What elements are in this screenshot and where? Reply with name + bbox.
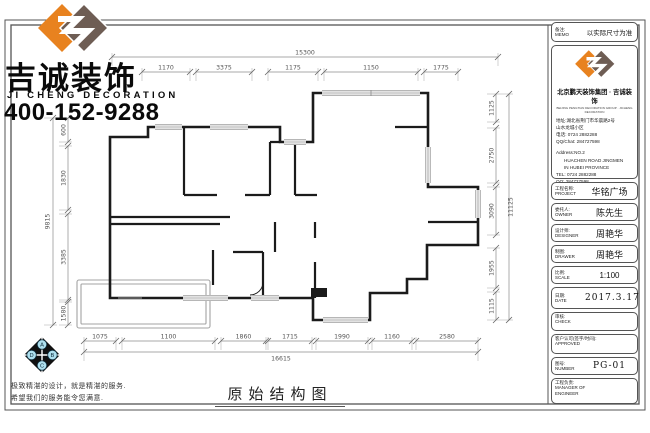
dimension-label: 1715 [282, 334, 298, 341]
tel-en: TEL: 0724 2882288 [556, 171, 633, 178]
field-scale: 比例:SCALE 1:100 [551, 266, 638, 284]
dimension-label: 1830 [61, 170, 68, 186]
memo-box: 备注: MEMO 以实际尺寸为准 [551, 22, 638, 42]
address-en-1: Address:NO.2 [556, 149, 633, 156]
owner-value: 陈先生 [585, 206, 634, 219]
dimension-label: 11125 [508, 197, 515, 217]
interior-walls [110, 127, 478, 298]
dimension-label: 1125 [489, 100, 496, 116]
field-approved: 客户认可(签字/时间):APPROVED [551, 334, 638, 354]
svg-text:C: C [40, 364, 44, 370]
field-number: 图号:NUMBER PG-01 [551, 357, 638, 375]
title-block: 备注: MEMO 以实际尺寸为准 北京鹏天装饰集团 · 吉诚装饰 BEIJING… [551, 22, 638, 404]
balcony-outline [77, 280, 210, 328]
company-phone: 400-152-9288 [4, 99, 159, 127]
field-project: 工程名称:PROJECT 华铭广场 [551, 182, 638, 200]
dimension-label: 1160 [384, 334, 400, 341]
svg-text:D: D [29, 353, 33, 359]
dimension-label: 9815 [45, 214, 52, 230]
slogan-line-1: 极致精湛的设计，就是精湛的服务. [11, 381, 126, 391]
dimension-label: 2750 [489, 148, 496, 164]
dimension-label: 3385 [61, 249, 68, 265]
titleblock-company-line: 北京鹏天装饰集团 · 吉诚装饰 [556, 87, 633, 105]
dimension-label: 1075 [92, 334, 108, 341]
titleblock-logo-icon [574, 49, 616, 81]
dimension-label: 1175 [285, 65, 301, 72]
drawer-value: 周艳华 [585, 248, 634, 261]
address-cn-1: 地址:湖北省荆门市华晨路2号 [556, 117, 633, 124]
designer-value: 周艳华 [585, 227, 634, 240]
dimension-label: 1955 [489, 260, 496, 276]
dimension-label: 1170 [158, 65, 174, 72]
dimension-label: 3375 [216, 65, 232, 72]
memo-label-cn: 备注: [555, 27, 565, 32]
field-manager: 工程负责:MANAGER OF ENGINEER [551, 378, 638, 404]
dimension-label: 1580 [61, 306, 68, 322]
dimension-label: 1115 [489, 298, 496, 314]
titleblock-company-sub: BEIJING PENGTIAN DECORATION GROUP · JICH… [556, 106, 633, 114]
dimension-label: 1100 [161, 334, 177, 341]
dimension-label: 1775 [433, 65, 449, 72]
field-check: 审核:CHECK [551, 312, 638, 331]
company-info-box: 北京鹏天装饰集团 · 吉诚装饰 BEIJING PENGTIAN DECORAT… [551, 45, 638, 179]
dimension-label: 3090 [489, 203, 496, 219]
memo-label-en: MEMO [555, 32, 569, 37]
dimension-label: 1990 [334, 334, 350, 341]
address-cn-2: 山水龙城小区 [556, 124, 633, 131]
drawing-title: 原始结构图 [215, 383, 345, 407]
address-en-3: IN HUBEI PROVINCE [556, 164, 633, 171]
dimension-label: 1860 [236, 334, 252, 341]
wall-block [311, 288, 327, 297]
dimension-label: 1150 [363, 65, 379, 72]
phone-cn: 电话: 0724 2882288 [556, 131, 633, 138]
field-designer: 设计师:DESIGNER 周艳华 [551, 224, 638, 242]
dimension-label: 15300 [295, 50, 315, 57]
dimension-label: 16615 [271, 356, 291, 363]
company-logo-icon [36, 2, 110, 58]
drawing-sheet: { "branding": { "company_cn": "吉诚装饰", "c… [0, 0, 650, 433]
date-value: 2017.3.17 [585, 293, 640, 303]
memo-value: 以实际尺寸为准 [585, 27, 634, 37]
drawing-number-value: PG-01 [585, 361, 634, 371]
door-arc [250, 282, 263, 295]
field-owner: 委托人:OWNER 陈先生 [551, 203, 638, 221]
scale-value: 1:100 [585, 271, 634, 280]
address-en-2: HUACHEN ROAD JINGMEN [556, 157, 633, 164]
slogan-line-2: 希望我们的服务能令您满意. [11, 393, 103, 403]
svg-text:A: A [40, 343, 44, 349]
dimension-label: 2580 [439, 334, 455, 341]
field-date: 日期:DATE 2017.3.17 [551, 287, 638, 309]
svg-text:B: B [51, 353, 55, 359]
field-drawer: 制图:DRAWER 周艳华 [551, 245, 638, 263]
qq-cn: QQ/Chat: 284727598 [556, 138, 633, 145]
project-value: 华铭广场 [585, 185, 634, 198]
quality-badge-icon: A B C D [23, 336, 61, 374]
